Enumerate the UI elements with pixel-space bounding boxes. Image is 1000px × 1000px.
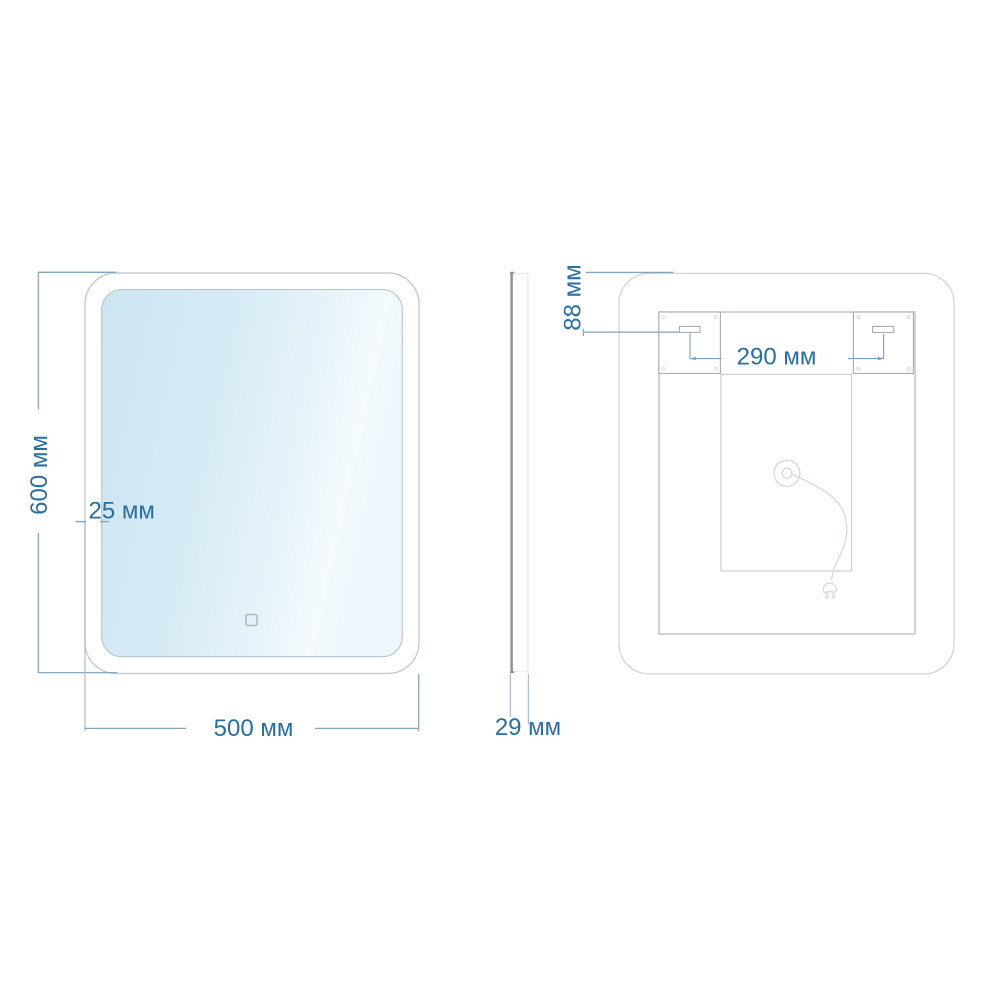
svg-text:600 мм: 600 мм [26,435,53,515]
svg-text:88 мм: 88 мм [560,264,587,330]
svg-text:500 мм: 500 мм [214,715,294,742]
svg-text:29 мм: 29 мм [495,714,561,741]
svg-text:290 мм: 290 мм [737,344,817,371]
svg-text:25 мм: 25 мм [89,498,155,525]
